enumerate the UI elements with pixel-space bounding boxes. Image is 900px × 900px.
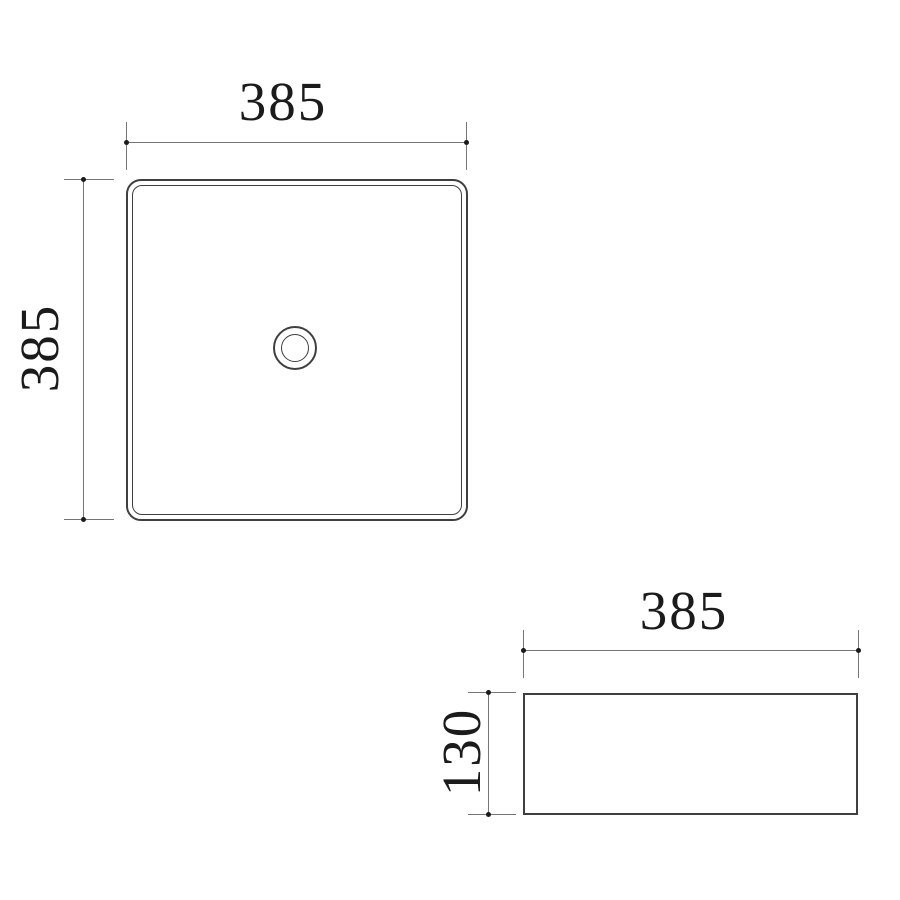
dimension-endpoint-dot <box>81 517 86 522</box>
drain-inner-circle <box>281 334 309 362</box>
extension-line <box>64 519 114 520</box>
dimension-endpoint-dot <box>81 177 86 182</box>
extension-line <box>523 630 524 678</box>
dimension-endpoint-dot <box>486 690 491 695</box>
side-view-width-label: 385 <box>584 589 784 633</box>
side-view-height-label: 130 <box>440 652 484 852</box>
extension-line <box>126 122 127 170</box>
dimension-endpoint-dot <box>521 648 526 653</box>
dimension-line <box>488 692 489 814</box>
top-view-width-label: 385 <box>183 80 383 124</box>
dimension-line <box>83 179 84 519</box>
extension-line <box>468 692 516 693</box>
extension-line <box>468 814 516 815</box>
extension-line <box>858 630 859 678</box>
extension-line <box>64 179 114 180</box>
top-view-height-label: 385 <box>18 248 62 448</box>
dimension-endpoint-dot <box>124 140 129 145</box>
dimension-line <box>523 650 858 651</box>
dimension-endpoint-dot <box>464 140 469 145</box>
basin-side-outline <box>523 693 858 815</box>
dimension-line <box>126 142 466 143</box>
technical-drawing-canvas: 385 385 385 130 <box>0 0 900 900</box>
dimension-endpoint-dot <box>856 648 861 653</box>
dimension-endpoint-dot <box>486 812 491 817</box>
extension-line <box>466 122 467 170</box>
